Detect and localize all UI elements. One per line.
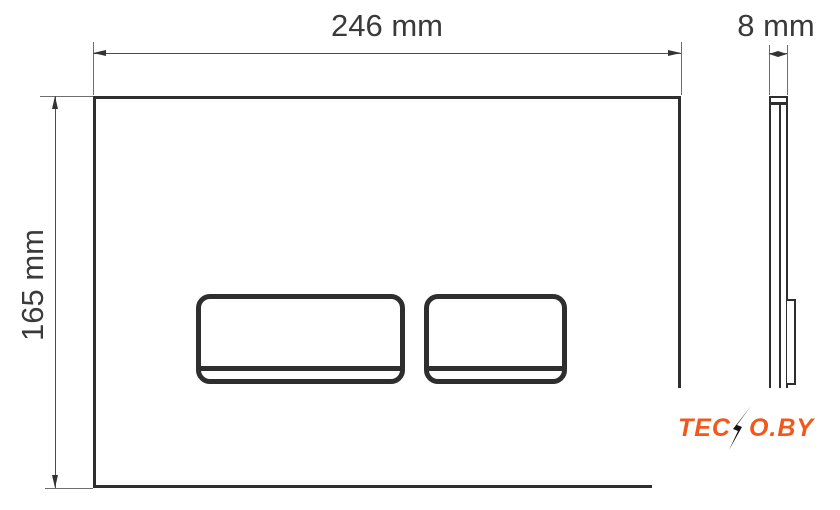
- height-dim-arrow-bottom: [52, 475, 58, 488]
- logo-text-suffix: O.BY: [749, 416, 814, 441]
- logo-text-prefix: TEC: [678, 416, 731, 441]
- width-dim-arrow-right: [668, 50, 681, 56]
- depth-dim-arrow-right: [778, 51, 787, 57]
- width-dim-arrow-left: [93, 50, 106, 56]
- depth-ext-line-right: [787, 45, 788, 95]
- height-dim-label: 165 mm: [16, 185, 52, 385]
- height-ext-line-top: [40, 96, 93, 97]
- lightning-bolt-icon: [728, 406, 752, 450]
- front-view-outline: [93, 96, 681, 488]
- side-view-outline: [769, 96, 788, 388]
- depth-dim-label: 8 mm: [706, 9, 840, 43]
- side-view-button-profile: [787, 299, 796, 385]
- width-dim-line: [93, 53, 681, 54]
- height-dim-line: [55, 96, 56, 488]
- technical-drawing: 246 mm 165 mm 8 mm TEC O.BY: [0, 0, 840, 510]
- flush-button-large-divider: [200, 366, 401, 371]
- height-dim-arrow-top: [52, 96, 58, 109]
- height-ext-line-bottom: [45, 488, 93, 489]
- flush-button-large: [196, 294, 405, 384]
- tecno-logo: TEC O.BY: [656, 406, 836, 450]
- depth-dim-arrow-left: [769, 51, 778, 57]
- flush-button-small: [424, 294, 567, 384]
- width-dim-label: 246 mm: [287, 9, 487, 43]
- side-view-inner-line: [779, 102, 781, 388]
- flush-button-small-divider: [428, 366, 563, 371]
